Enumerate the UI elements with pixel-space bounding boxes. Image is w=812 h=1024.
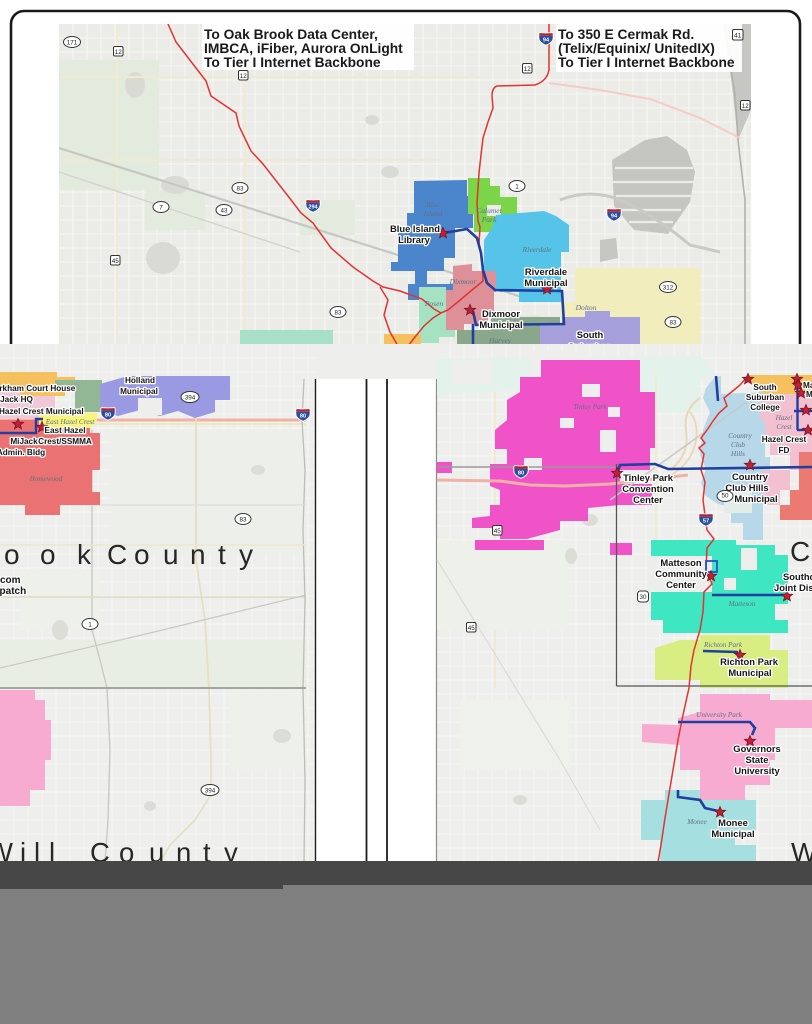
svg-text:com: com [0,575,21,586]
svg-text:To 350 E Cermak Rd.: To 350 E Cermak Rd. [558,27,694,42]
svg-text:East Hazel: East Hazel [45,426,86,435]
svg-text:41: 41 [734,32,742,39]
svg-text:Center: Center [633,494,663,505]
svg-text:MiJack HQ: MiJack HQ [0,395,33,404]
svg-text:Tinley Park: Tinley Park [573,403,607,411]
svg-text:Blue: Blue [426,200,440,209]
svg-text:Park: Park [481,215,497,224]
svg-text:Matteson: Matteson [728,600,756,608]
svg-text:94: 94 [611,214,618,220]
svg-text:294: 294 [308,205,318,211]
svg-text:College: College [750,403,780,412]
svg-text:43: 43 [220,208,228,215]
svg-text:Monee: Monee [686,818,707,826]
svg-text:Suburban: Suburban [746,393,784,402]
svg-text:Convention: Convention [622,483,674,494]
svg-text:Blue Island: Blue Island [390,223,440,234]
svg-text:83: 83 [239,517,247,524]
svg-text:Hazel Crest Municipal: Hazel Crest Municipal [0,407,84,416]
svg-text:To Oak Brook Data Center,: To Oak Brook Data Center, [204,27,378,42]
svg-text:45: 45 [494,528,502,535]
svg-text:Markham Court House: Markham Court House [0,384,76,393]
svg-text:312: 312 [663,285,674,292]
svg-text:South: South [577,329,604,340]
svg-text:30: 30 [639,594,647,601]
svg-text:Hazel Crest: Hazel Crest [762,435,807,444]
svg-text:Homewood: Homewood [29,475,63,483]
svg-text:7: 7 [159,205,163,212]
svg-text:Ma: Ma [803,381,812,390]
svg-text:12: 12 [240,73,248,80]
svg-text:Joint Dis: Joint Dis [774,582,812,593]
svg-text:Crest/SSMMA: Crest/SSMMA [38,437,92,446]
svg-text:83: 83 [236,186,244,193]
svg-text:50: 50 [721,493,729,500]
svg-text:Club: Club [731,441,745,449]
svg-text:80: 80 [105,413,111,419]
svg-text:45: 45 [112,258,120,265]
svg-text:45: 45 [468,625,476,632]
svg-text:Dolton: Dolton [575,303,597,312]
svg-text:Island: Island [423,209,443,218]
svg-text:Municipal: Municipal [711,828,754,839]
svg-text:12: 12 [742,103,750,110]
svg-text:South: South [753,383,776,392]
svg-text:IMBCA, iFiber, Aurora OnLight: IMBCA, iFiber, Aurora OnLight [204,41,403,56]
svg-text:Municipal: Municipal [479,319,522,330]
svg-text:171: 171 [67,40,78,47]
svg-text:1: 1 [88,622,92,629]
svg-text:Municipal: Municipal [120,387,158,396]
svg-text:83: 83 [669,320,677,327]
svg-text:University Park: University Park [696,711,743,719]
svg-text:Municipal: Municipal [728,667,771,678]
svg-text:Hills: Hills [730,450,745,458]
svg-text:Admin. Bldg: Admin. Bldg [0,448,45,457]
svg-text:spatch: spatch [0,586,26,597]
svg-text:To Tier I Internet Backbone: To Tier I Internet Backbone [204,55,381,70]
svg-text:Riverdale: Riverdale [522,245,553,254]
svg-text:Richton Park: Richton Park [703,641,743,649]
svg-text:Crest: Crest [776,423,792,431]
svg-text:80: 80 [518,471,524,477]
svg-text:University: University [734,765,780,776]
svg-text:Dixmoor: Dixmoor [482,308,520,319]
svg-text:Hazel: Hazel [775,414,793,422]
svg-text:Matteson: Matteson [660,557,701,568]
svg-text:Community: Community [655,568,707,579]
svg-text:Riverdale: Riverdale [525,266,567,277]
svg-text:Country: Country [728,432,752,440]
svg-text:To Tier I Internet Backbone: To Tier I Internet Backbone [558,55,735,70]
svg-text:57: 57 [703,519,709,525]
svg-text:Municipal: Municipal [524,277,567,288]
svg-text:Municipal: Municipal [734,493,777,504]
svg-text:394: 394 [185,395,196,402]
svg-text:Calumet: Calumet [476,206,502,215]
svg-text:Dixmoor: Dixmoor [449,277,477,286]
svg-text:Club Hills: Club Hills [725,482,768,493]
svg-text:State: State [746,754,769,765]
svg-text:Southc: Southc [783,571,812,582]
svg-text:394: 394 [205,788,216,795]
svg-text:Country: Country [732,471,769,482]
svg-text:83: 83 [334,310,342,317]
svg-text:MiJack: MiJack [10,437,38,446]
svg-text:Monee: Monee [718,817,748,828]
svg-text:East Hazel Crest: East Hazel Crest [45,418,95,426]
svg-text:FD: FD [779,446,790,455]
svg-text:1: 1 [515,184,519,191]
svg-text:12: 12 [115,49,123,56]
svg-text:Governors: Governors [733,743,780,754]
svg-text:Richton Park: Richton Park [720,656,779,667]
svg-text:C: C [790,536,810,567]
svg-text:M: M [806,390,812,399]
svg-text:Holland: Holland [125,376,155,385]
svg-text:94: 94 [543,38,550,44]
svg-text:(Telix/Equinix/ UnitedIX): (Telix/Equinix/ UnitedIX) [558,41,715,56]
svg-text:12: 12 [524,66,532,73]
svg-text:Center: Center [666,579,696,590]
svg-text:Library: Library [398,234,431,245]
svg-text:Posen: Posen [424,299,444,308]
svg-text:Tinley Park: Tinley Park [623,472,674,483]
svg-text:Harvey: Harvey [488,336,512,345]
svg-text:80: 80 [300,414,306,420]
